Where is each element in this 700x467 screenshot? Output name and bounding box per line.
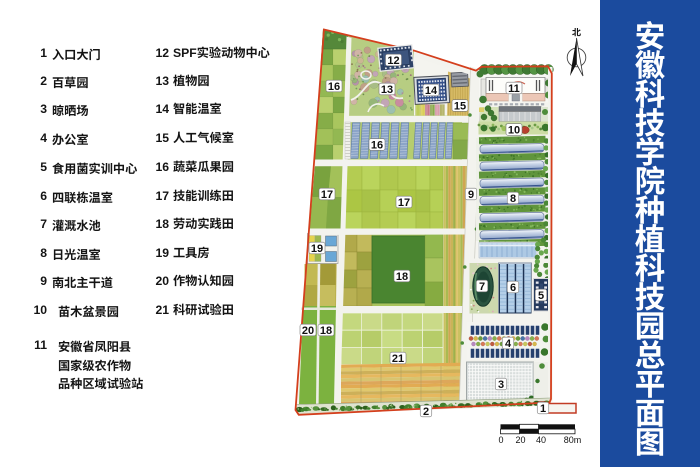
svg-text:北: 北 [572, 26, 581, 39]
svg-text:80m: 80m [564, 435, 582, 445]
svg-text:10: 10 [508, 125, 520, 137]
svg-text:19: 19 [311, 243, 323, 255]
svg-text:40: 40 [536, 435, 546, 445]
svg-text:5: 5 [538, 290, 544, 302]
svg-text:18: 18 [320, 325, 332, 337]
svg-text:3: 3 [498, 379, 504, 391]
svg-text:6: 6 [510, 282, 516, 294]
svg-text:7: 7 [479, 281, 485, 293]
svg-text:12: 12 [387, 55, 399, 67]
svg-text:14: 14 [425, 85, 438, 97]
svg-text:21: 21 [392, 353, 404, 365]
svg-text:11: 11 [508, 83, 520, 95]
svg-text:16: 16 [371, 140, 383, 152]
svg-text:15: 15 [454, 101, 466, 113]
svg-text:20: 20 [302, 325, 314, 337]
svg-text:17: 17 [398, 197, 410, 209]
svg-text:8: 8 [510, 193, 516, 205]
svg-text:20: 20 [515, 435, 525, 445]
svg-text:18: 18 [396, 271, 408, 283]
svg-text:16: 16 [328, 81, 340, 93]
svg-text:0: 0 [498, 435, 503, 445]
svg-text:1: 1 [540, 403, 546, 415]
svg-text:13: 13 [381, 84, 393, 96]
svg-text:2: 2 [423, 406, 429, 418]
svg-text:9: 9 [468, 189, 474, 201]
svg-text:4: 4 [505, 338, 512, 350]
svg-text:17: 17 [321, 189, 333, 201]
